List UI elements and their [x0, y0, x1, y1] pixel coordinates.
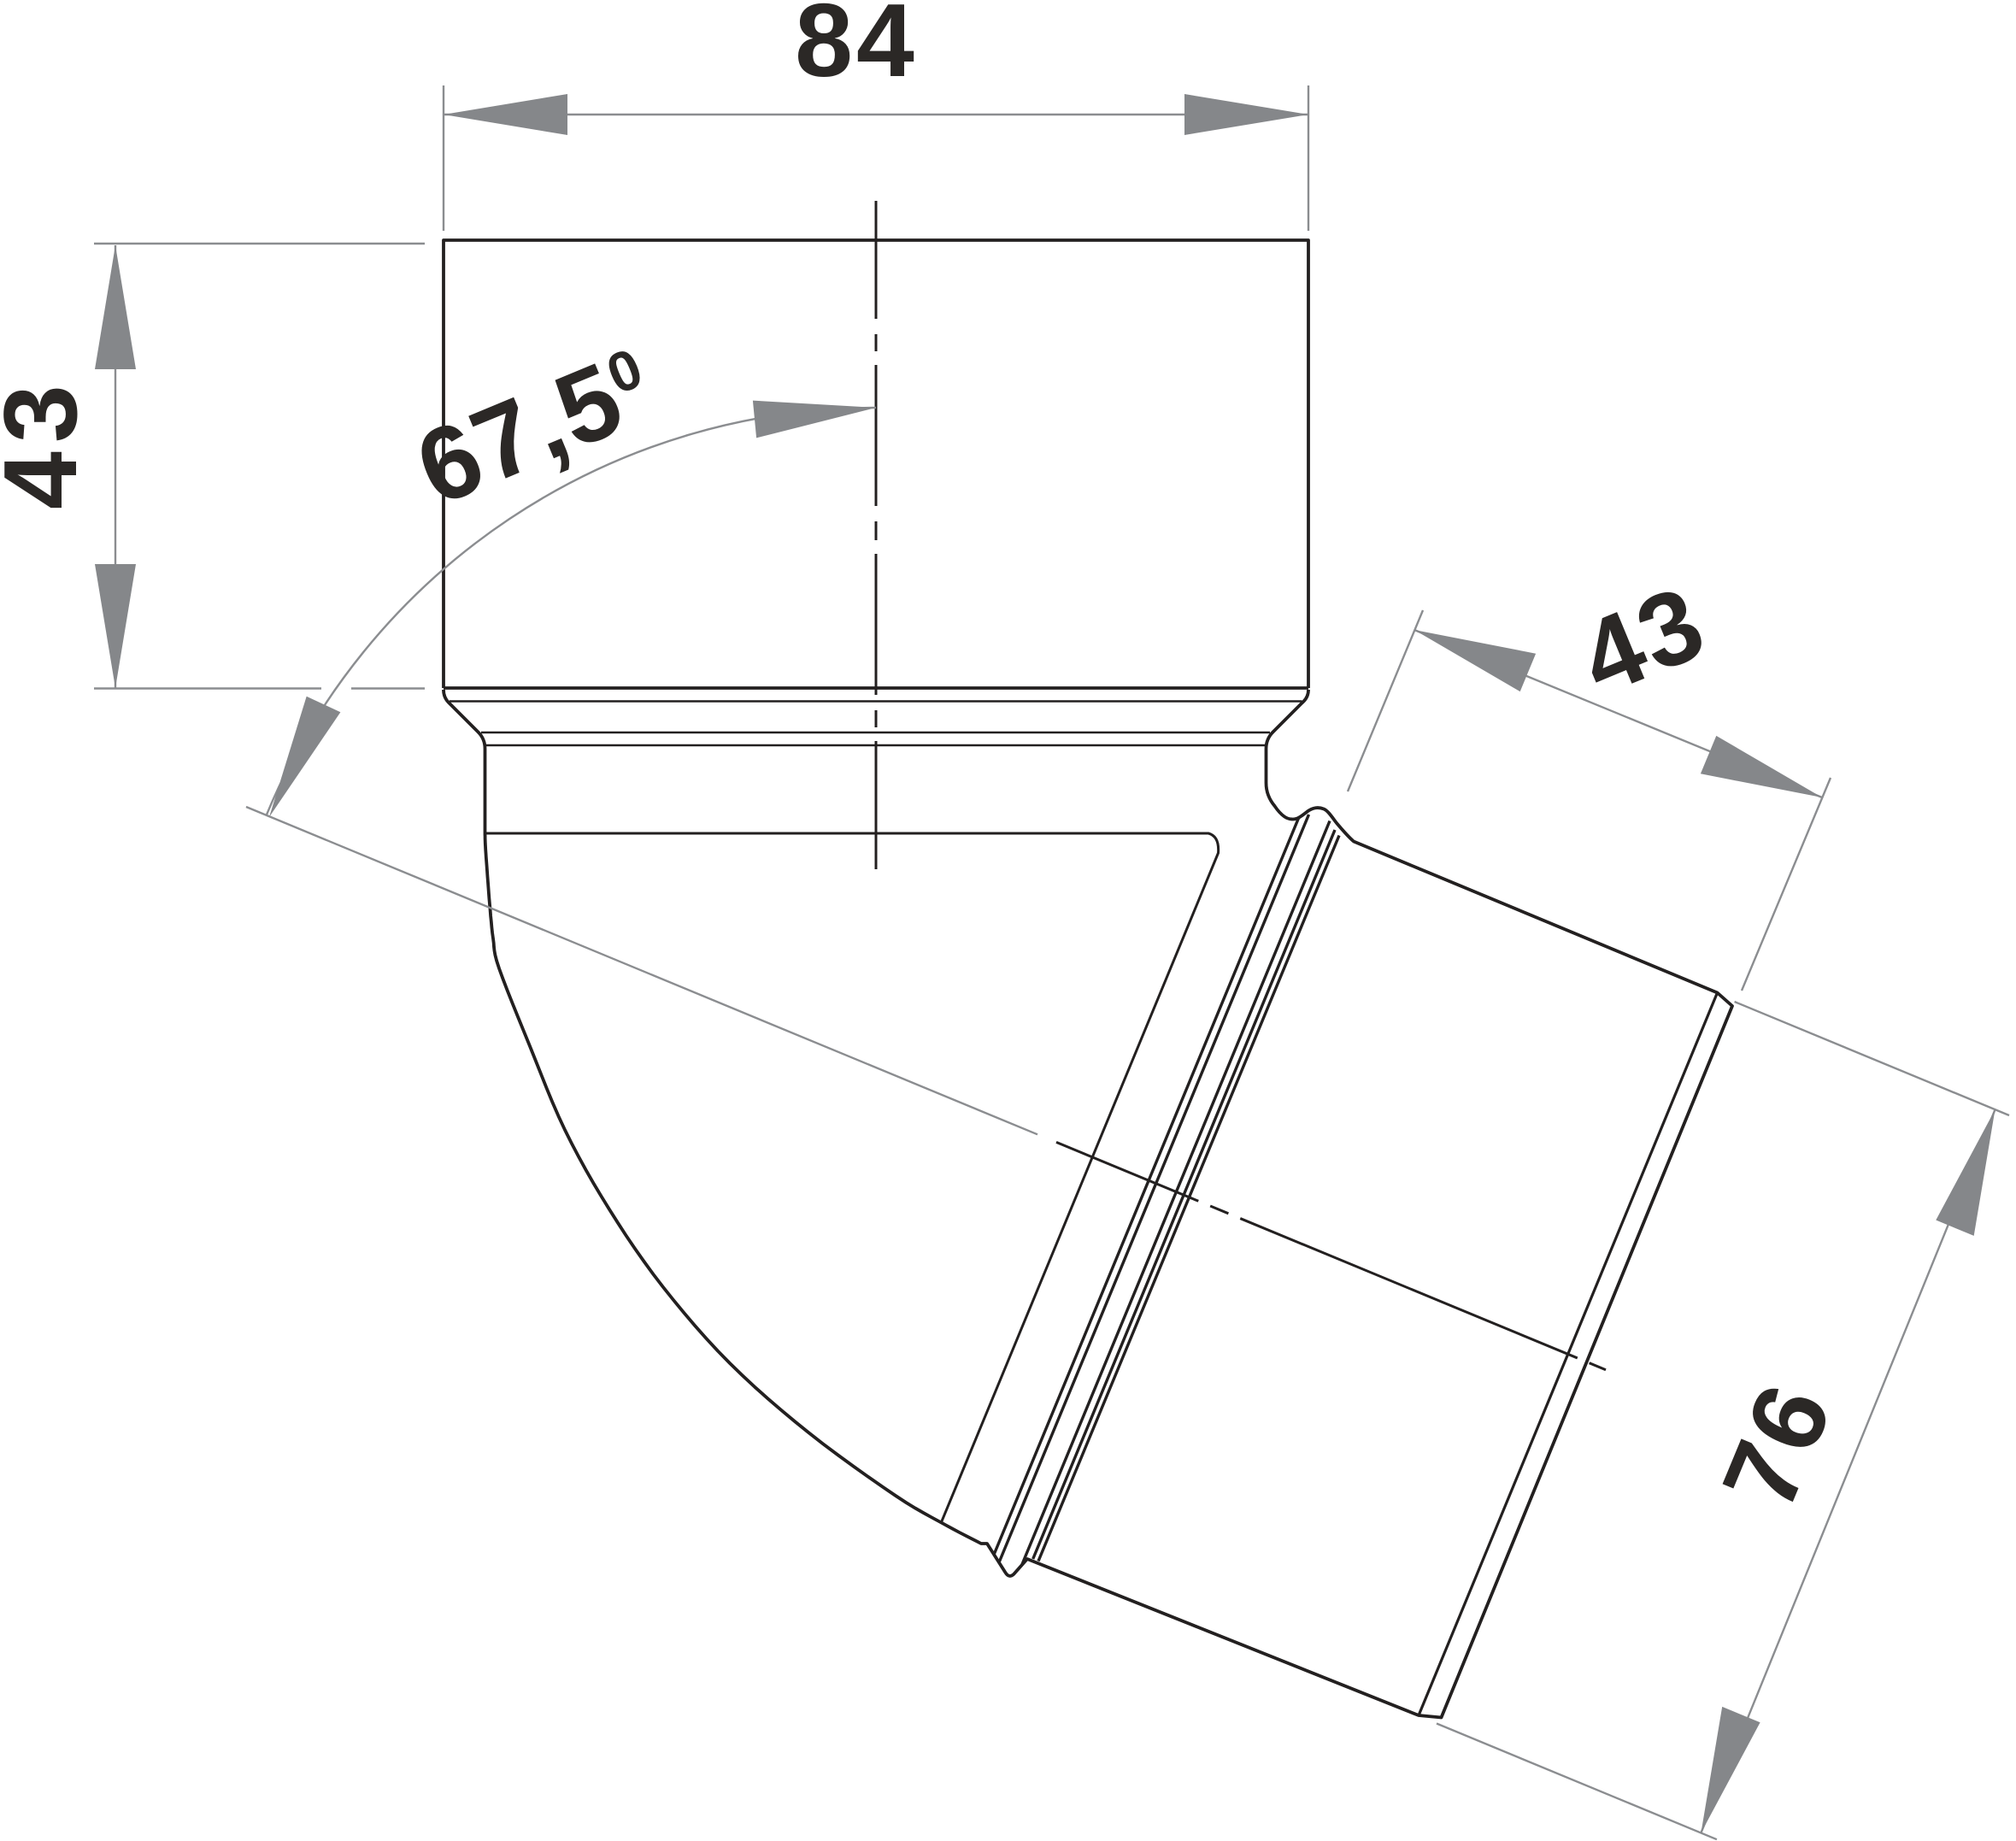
- svg-text:84: 84: [795, 0, 918, 98]
- svg-text:43: 43: [0, 376, 98, 509]
